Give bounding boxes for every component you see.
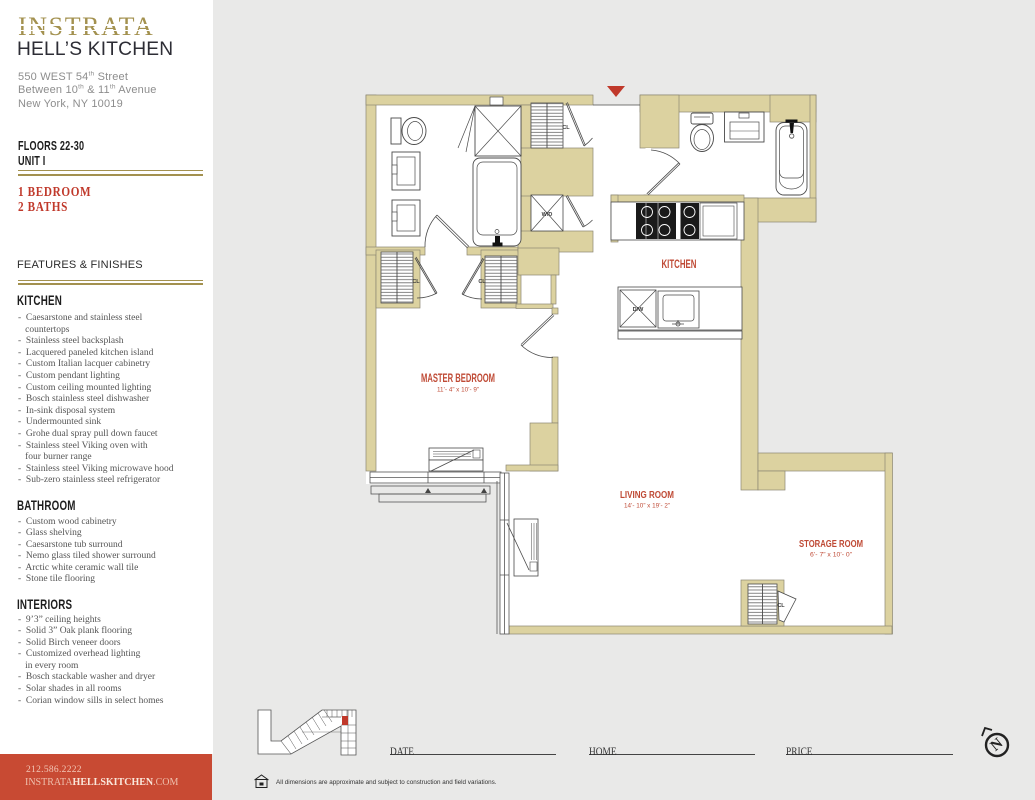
svg-text:W/D: W/D (542, 212, 553, 218)
svg-text:MASTER BEDROOM: MASTER BEDROOM (421, 371, 495, 385)
svg-text:STORAGE ROOM: STORAGE ROOM (799, 538, 863, 550)
svg-text:11’- 4” x 10’- 9”: 11’- 4” x 10’- 9” (437, 387, 479, 394)
svg-text:LIVING ROOM: LIVING ROOM (620, 489, 674, 501)
svg-text:6’- 7” x 10’- 0”: 6’- 7” x 10’- 0” (810, 552, 852, 559)
svg-text:CL: CL (412, 279, 420, 285)
svg-text:14’- 10” x 19’- 2”: 14’- 10” x 19’- 2” (624, 503, 670, 510)
svg-text:CL: CL (777, 603, 785, 609)
svg-text:N: N (988, 735, 1007, 754)
svg-text:KITCHEN: KITCHEN (662, 257, 697, 271)
svg-text:CL: CL (562, 125, 570, 131)
svg-text:D/W: D/W (633, 307, 645, 313)
svg-text:CL: CL (478, 279, 486, 285)
